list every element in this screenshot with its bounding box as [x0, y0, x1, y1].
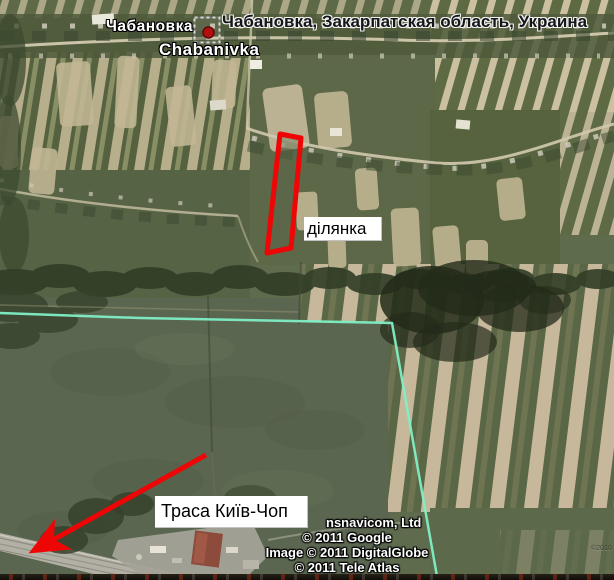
search-result-label: Чабановка, Закарпатская область, Украина: [222, 13, 587, 32]
place-translit-label: Chabanivka: [159, 41, 259, 60]
attribution-google: © 2011 Google: [302, 531, 392, 545]
map-canvas[interactable]: Чабановка Чабановка, Закарпатская област…: [0, 0, 614, 580]
plot-label-text: ділянка: [307, 219, 366, 239]
status-bar-clipped: [0, 574, 614, 580]
imagery-watermark: ©2010: [591, 545, 612, 553]
attribution-provider: nsnavicom, Ltd: [326, 516, 421, 530]
highway-label-box: Траса Київ-Чоп: [155, 496, 308, 528]
plot-label-box: ділянка: [304, 217, 382, 241]
placemark-dot[interactable]: [203, 27, 214, 38]
attribution-imagery: Image © 2011 DigitalGlobe: [266, 546, 429, 560]
place-name-label: Чабановка: [106, 18, 193, 35]
highway-label-text: Траса Київ-Чоп: [161, 501, 288, 522]
plot-polygon[interactable]: [267, 134, 301, 253]
